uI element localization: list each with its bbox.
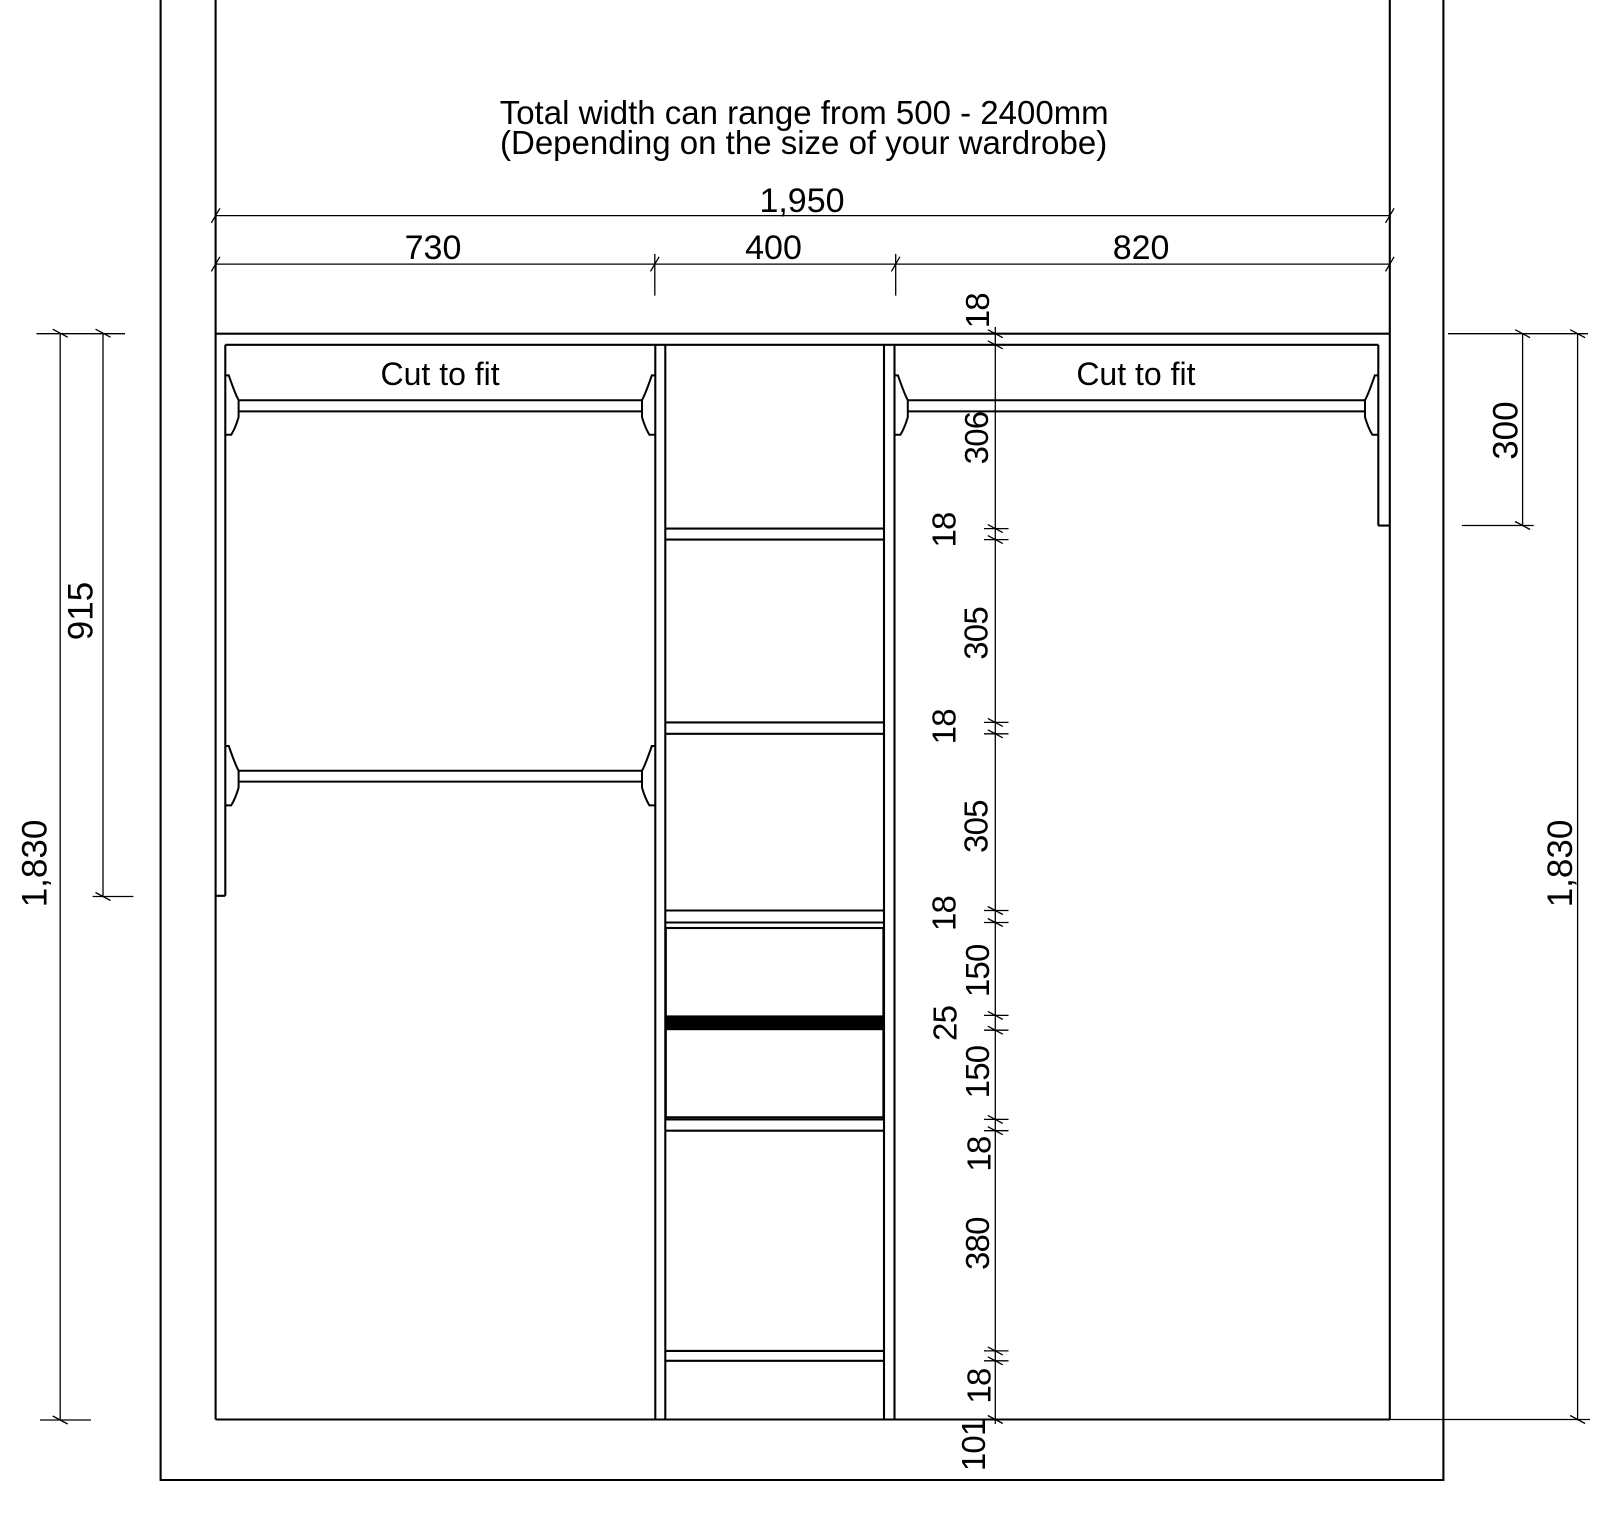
svg-text:Cut to fit: Cut to fit — [1076, 356, 1195, 392]
svg-text:18: 18 — [960, 1136, 997, 1171]
svg-text:18: 18 — [960, 1368, 997, 1403]
svg-text:305: 305 — [958, 607, 995, 660]
svg-text:400: 400 — [745, 229, 802, 267]
svg-text:380: 380 — [959, 1217, 996, 1270]
svg-text:18: 18 — [925, 896, 962, 931]
svg-text:300: 300 — [1486, 401, 1525, 459]
svg-text:18: 18 — [959, 293, 996, 328]
svg-text:18: 18 — [925, 709, 962, 744]
svg-text:915: 915 — [61, 582, 100, 640]
svg-text:25: 25 — [926, 1006, 963, 1041]
svg-text:306: 306 — [958, 412, 995, 465]
svg-text:820: 820 — [1113, 229, 1170, 267]
svg-text:305: 305 — [958, 800, 995, 853]
svg-text:150: 150 — [959, 944, 996, 997]
svg-text:101: 101 — [955, 1418, 992, 1471]
svg-text:(Depending on the size of your: (Depending on the size of your wardrobe) — [500, 124, 1107, 161]
svg-text:Cut to fit: Cut to fit — [381, 356, 500, 392]
svg-text:18: 18 — [925, 512, 962, 547]
svg-text:150: 150 — [959, 1045, 996, 1098]
svg-text:1,950: 1,950 — [759, 182, 844, 220]
svg-text:730: 730 — [405, 229, 462, 267]
svg-text:1,830: 1,830 — [1541, 820, 1580, 908]
svg-text:1,830: 1,830 — [16, 820, 55, 908]
